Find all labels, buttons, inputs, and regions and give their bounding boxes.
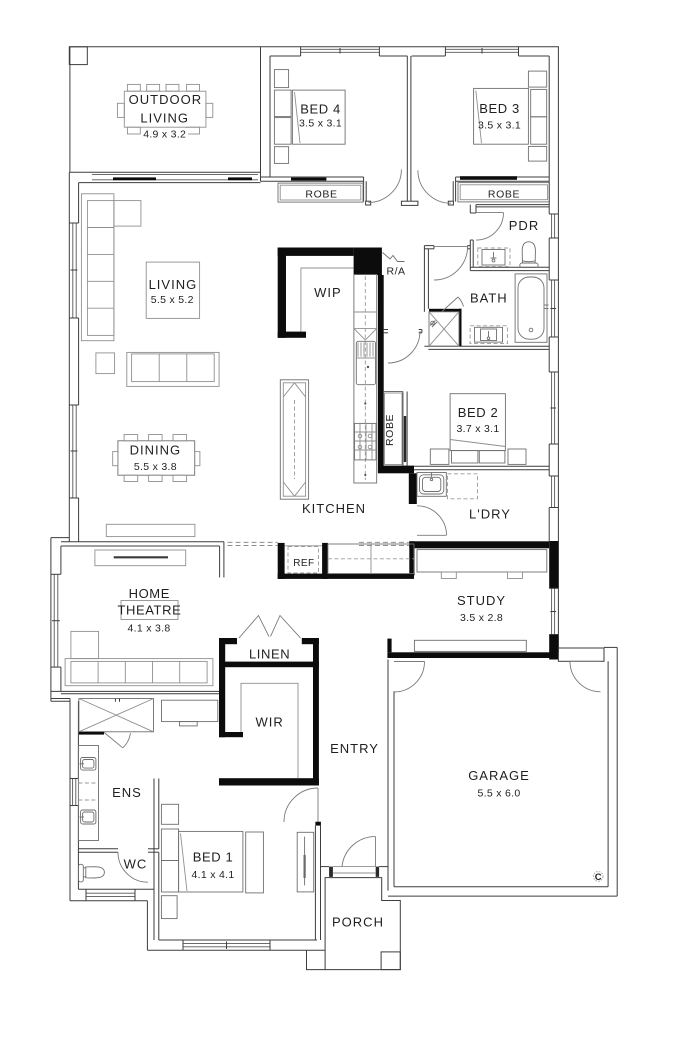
svg-text:3.5 x 3.1: 3.5 x 3.1 xyxy=(299,118,342,130)
svg-text:WIR: WIR xyxy=(255,715,283,730)
svg-text:ROBE: ROBE xyxy=(384,414,396,446)
svg-text:5.5 x 6.0: 5.5 x 6.0 xyxy=(478,787,521,799)
svg-text:BED 3: BED 3 xyxy=(479,101,520,116)
svg-text:L'DRY: L'DRY xyxy=(469,507,511,522)
svg-text:4.9 x 3.2: 4.9 x 3.2 xyxy=(143,128,186,140)
svg-text:3.5 x 3.1: 3.5 x 3.1 xyxy=(478,120,521,132)
svg-text:3.7 x 3.1: 3.7 x 3.1 xyxy=(457,423,500,435)
svg-text:BED 4: BED 4 xyxy=(300,102,341,117)
svg-text:5.5 x 5.2: 5.5 x 5.2 xyxy=(151,294,194,306)
svg-text:ENTRY: ENTRY xyxy=(330,741,379,756)
svg-text:BATH: BATH xyxy=(470,291,508,306)
svg-text:DINING: DINING xyxy=(130,443,182,458)
svg-text:BED 2: BED 2 xyxy=(458,405,499,420)
svg-text:C: C xyxy=(595,872,602,883)
svg-text:PORCH: PORCH xyxy=(332,914,384,929)
svg-text:BED 1: BED 1 xyxy=(193,850,234,865)
svg-text:STUDY: STUDY xyxy=(457,593,506,608)
svg-text:ROBE: ROBE xyxy=(488,188,520,200)
svg-text:LIVING: LIVING xyxy=(140,111,189,126)
svg-text:WIP: WIP xyxy=(314,285,342,300)
svg-text:3.5 x 2.8: 3.5 x 2.8 xyxy=(460,612,503,624)
svg-text:OUTDOOR: OUTDOOR xyxy=(129,92,202,107)
svg-text:LIVING: LIVING xyxy=(149,277,198,292)
svg-text:4.1 x 3.8: 4.1 x 3.8 xyxy=(128,622,171,634)
svg-text:LINEN: LINEN xyxy=(249,646,290,661)
svg-text:5.5 x 3.8: 5.5 x 3.8 xyxy=(134,461,177,473)
svg-text:GARAGE: GARAGE xyxy=(468,768,530,783)
svg-text:REF: REF xyxy=(293,558,314,569)
svg-text:KITCHEN: KITCHEN xyxy=(302,501,366,516)
svg-text:ROBE: ROBE xyxy=(305,188,337,200)
svg-text:PDR: PDR xyxy=(509,218,539,233)
svg-text:THEATRE: THEATRE xyxy=(117,603,181,618)
svg-text:HOME: HOME xyxy=(129,586,170,601)
svg-text:R/A: R/A xyxy=(387,266,406,278)
svg-text:WC: WC xyxy=(124,856,148,871)
svg-text:4.1 x 4.1: 4.1 x 4.1 xyxy=(192,869,235,881)
svg-text:ENS: ENS xyxy=(112,785,142,800)
